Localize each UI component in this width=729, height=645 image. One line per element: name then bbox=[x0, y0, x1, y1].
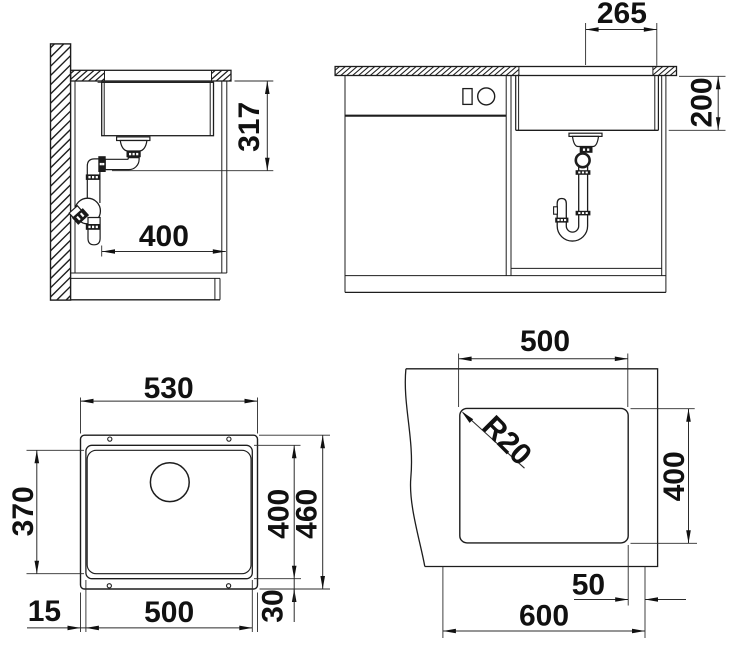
svg-text:400: 400 bbox=[139, 220, 189, 253]
svg-text:15: 15 bbox=[28, 595, 61, 628]
svg-text:265: 265 bbox=[597, 0, 647, 30]
svg-text:370: 370 bbox=[7, 486, 40, 536]
svg-text:50: 50 bbox=[572, 569, 605, 602]
svg-text:500: 500 bbox=[520, 325, 570, 358]
svg-text:30: 30 bbox=[257, 589, 290, 622]
svg-text:460: 460 bbox=[290, 489, 323, 539]
svg-text:530: 530 bbox=[144, 372, 194, 405]
svg-text:200: 200 bbox=[685, 77, 718, 127]
svg-text:400: 400 bbox=[658, 451, 691, 501]
svg-text:317: 317 bbox=[233, 102, 266, 152]
svg-text:500: 500 bbox=[144, 596, 194, 629]
svg-text:600: 600 bbox=[519, 599, 569, 632]
